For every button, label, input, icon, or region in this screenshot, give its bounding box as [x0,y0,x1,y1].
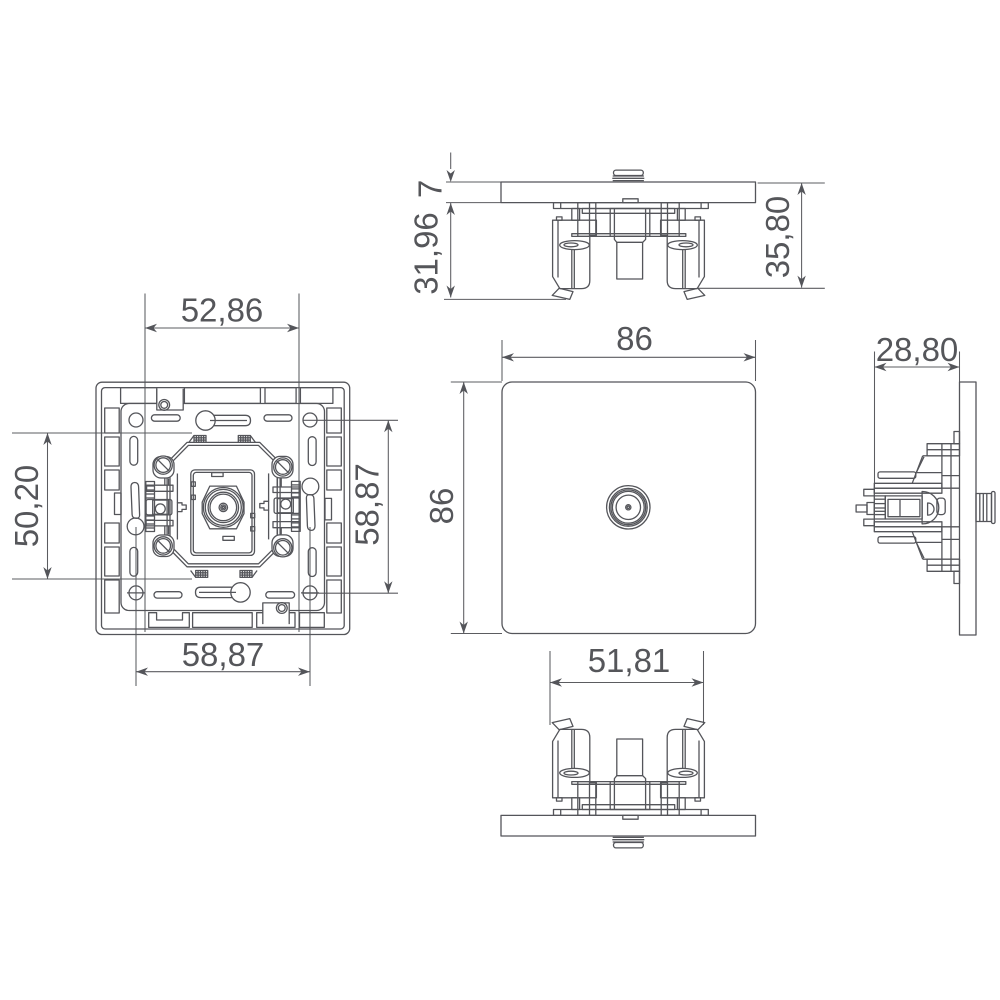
svg-text:58,87: 58,87 [182,636,265,673]
svg-text:86: 86 [616,320,653,357]
svg-text:86: 86 [423,488,460,525]
svg-text:7: 7 [412,180,449,198]
svg-text:50,20: 50,20 [8,465,45,548]
svg-text:28,80: 28,80 [876,331,959,368]
svg-text:35,80: 35,80 [759,196,796,279]
svg-text:51,81: 51,81 [588,642,671,679]
svg-text:31,96: 31,96 [408,212,445,295]
svg-text:58,87: 58,87 [349,463,386,546]
svg-text:52,86: 52,86 [181,292,264,329]
